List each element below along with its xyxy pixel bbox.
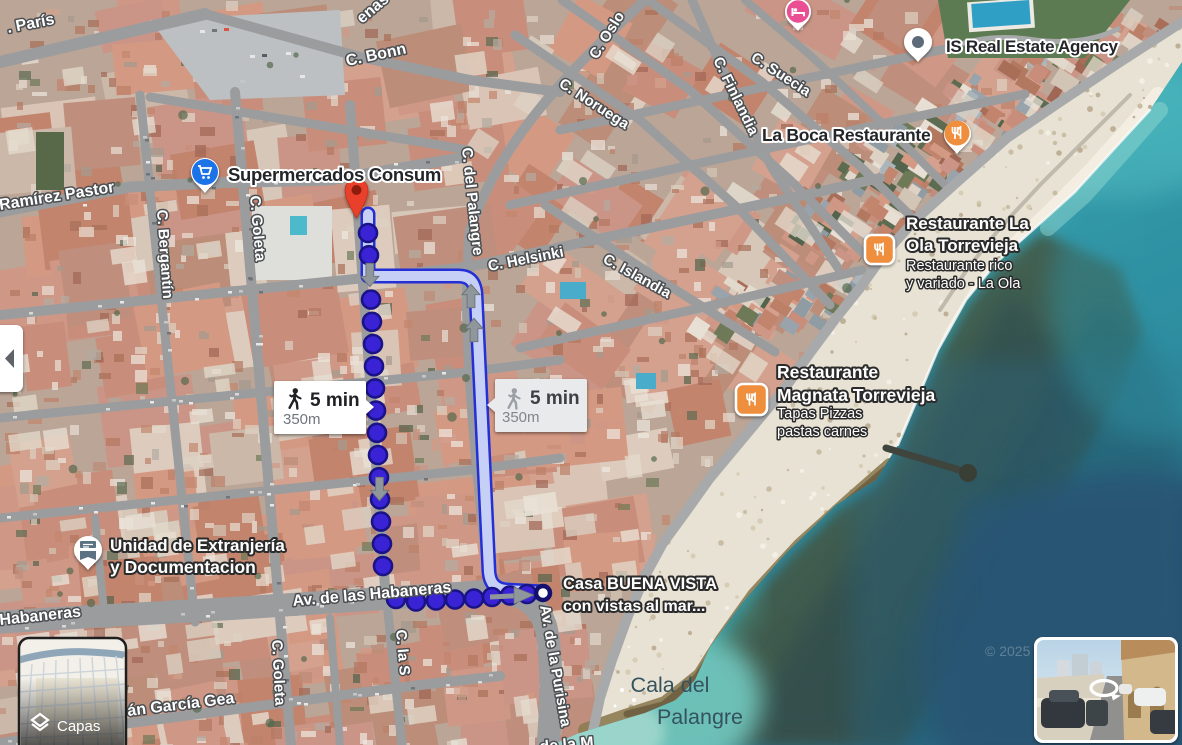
svg-text:IS Real Estate Agency: IS Real Estate Agency	[946, 37, 1118, 56]
svg-text:con vistas al mar...: con vistas al mar...	[563, 598, 705, 615]
svg-text:Casa BUENA VISTA: Casa BUENA VISTA	[563, 575, 717, 593]
svg-text:y Documentacion: y Documentacion	[110, 557, 256, 577]
svg-text:y variado - La Ola: y variado - La Ola	[906, 276, 1021, 292]
svg-text:Magnata Torrevieja: Magnata Torrevieja	[777, 385, 935, 405]
svg-text:Cala del: Cala del	[631, 673, 710, 697]
svg-text:Ola Torrevieja: Ola Torrevieja	[906, 236, 1019, 255]
svg-text:Tapas Pizzas: Tapas Pizzas	[777, 406, 862, 422]
svg-text:Palangre: Palangre	[657, 705, 743, 729]
svg-text:pastas carnes: pastas carnes	[777, 424, 867, 440]
svg-text:5 min: 5 min	[530, 388, 580, 409]
svg-text:La Boca Restaurante: La Boca Restaurante	[762, 125, 931, 145]
svg-text:Restaurante La: Restaurante La	[906, 214, 1029, 233]
svg-text:© 2025: © 2025	[985, 643, 1031, 659]
svg-text:Restaurante: Restaurante	[777, 362, 878, 382]
svg-text:Unidad de Extranjería: Unidad de Extranjería	[110, 536, 285, 555]
svg-text:5 min: 5 min	[310, 390, 360, 411]
svg-text:C. Goleta: C. Goleta	[268, 639, 288, 706]
svg-text:350m: 350m	[502, 409, 540, 426]
svg-text:Capas: Capas	[57, 718, 100, 735]
svg-text:Supermercados Consum: Supermercados Consum	[228, 164, 441, 185]
svg-text:350m: 350m	[283, 411, 321, 428]
svg-text:Restaurante rico: Restaurante rico	[906, 258, 1012, 274]
